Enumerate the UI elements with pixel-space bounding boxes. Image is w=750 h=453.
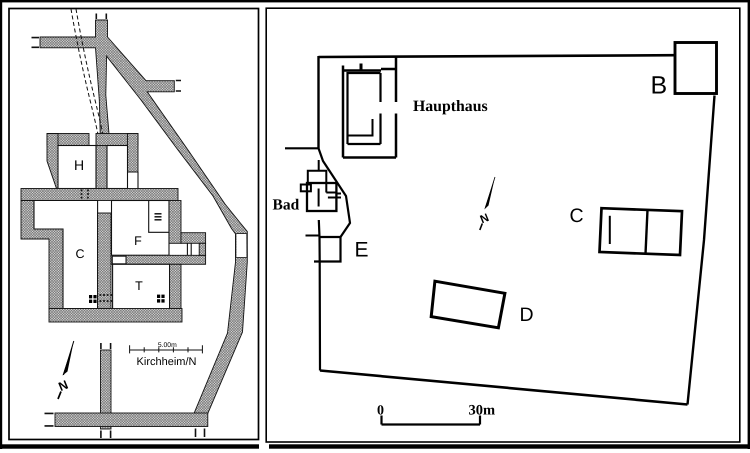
svg-text:C: C [75,247,84,261]
svg-text:5.00m: 5.00m [158,342,177,349]
svg-text:T: T [135,279,143,293]
svg-text:H: H [74,157,84,173]
svg-text:Haupthaus: Haupthaus [413,98,488,115]
svg-text:E: E [355,239,369,262]
svg-text:0: 0 [377,404,384,419]
svg-text:N: N [57,378,71,394]
svg-text:C: C [570,205,584,227]
svg-text:D: D [520,304,534,326]
svg-text:30m: 30m [469,403,496,419]
svg-text:Kirchheim/N: Kirchheim/N [137,356,197,368]
svg-text:Bad: Bad [273,197,300,214]
svg-text:F: F [134,234,142,248]
svg-text:N: N [479,212,491,226]
svg-text:B: B [651,72,668,100]
